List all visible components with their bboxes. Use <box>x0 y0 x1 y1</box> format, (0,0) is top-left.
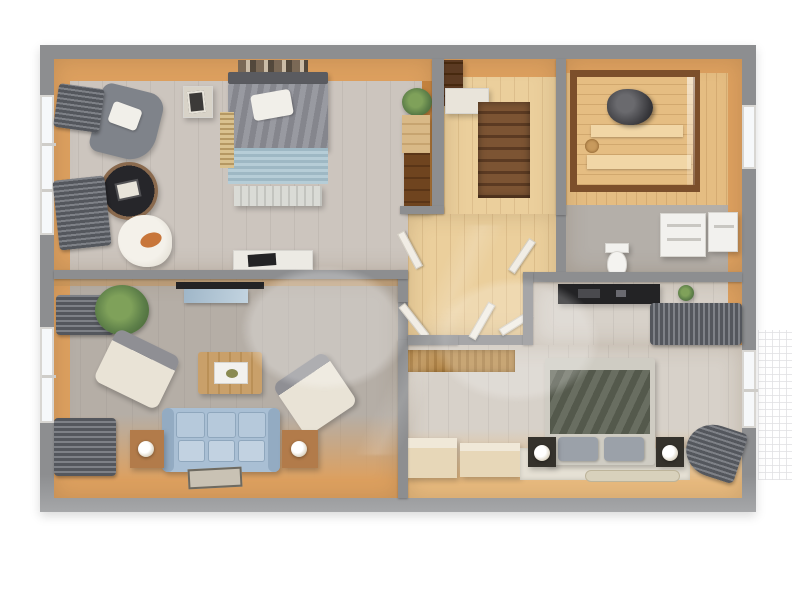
floor-plan <box>40 45 756 512</box>
page: { "scene": { "kind": "3d-rendered apartm… <box>0 0 800 590</box>
window-bedroom1 <box>40 95 54 235</box>
cabinet-light <box>402 115 430 153</box>
window-sauna <box>742 105 756 169</box>
laptop <box>248 253 277 267</box>
curtain-bedroom2-top <box>650 303 742 345</box>
tv-living-screen <box>184 289 248 303</box>
staircase <box>478 102 530 198</box>
plant-bedroom1 <box>402 88 432 116</box>
plant-living <box>95 285 149 335</box>
low-bench-2 <box>460 443 520 477</box>
sauna-bench-upper <box>591 125 683 137</box>
plant-bedroom2 <box>678 285 694 301</box>
bed2-pillow-left <box>558 437 598 461</box>
curtain-living-bottom <box>54 418 116 476</box>
outdoor-lattice <box>758 330 792 480</box>
rug-living <box>188 467 243 490</box>
bed1-headboard <box>228 72 328 84</box>
bed1-blanket <box>228 148 328 184</box>
bed2-pillow-right <box>604 437 644 461</box>
washer-cabinet-1 <box>660 213 706 257</box>
tv-living <box>176 282 264 289</box>
wall-hall-bottom <box>408 335 458 345</box>
wall-bedroom1-hall <box>432 59 444 213</box>
wall-stub-bedroom1 <box>400 206 444 214</box>
coffee-table-tray <box>214 362 248 384</box>
wall-bath-bedroom2 <box>523 272 742 282</box>
curtain-bedroom1-bottom <box>52 175 111 250</box>
wall-hall-bedroom2 <box>523 272 533 345</box>
wall-shelf-clutter <box>238 60 308 72</box>
lamp-right <box>291 441 307 457</box>
picture-frame <box>187 90 206 114</box>
lamp-bedroom2-right <box>662 445 678 461</box>
sauna-cabin <box>570 70 700 192</box>
washer-cabinet-2 <box>708 212 738 252</box>
woven-rug <box>405 350 515 372</box>
sofa <box>162 408 280 472</box>
lamp-left <box>138 441 154 457</box>
sauna-ladle <box>585 139 599 153</box>
runner-bedroom2 <box>585 470 680 482</box>
low-bench-1 <box>405 438 457 478</box>
window-living <box>40 327 54 423</box>
bed2-duvet <box>550 370 650 434</box>
slatted-runner <box>220 112 234 168</box>
lamp-bedroom2-left <box>534 445 550 461</box>
window-bedroom2 <box>742 350 756 428</box>
tv-console-bedroom2 <box>558 284 660 304</box>
wall-living-bedroom2 <box>398 340 408 498</box>
sauna-bench-lower <box>587 155 691 169</box>
sauna-glass <box>687 77 695 185</box>
sauna-heater <box>607 89 653 125</box>
cabinet-dark <box>404 153 430 213</box>
wall-hall-bath <box>556 59 566 215</box>
wall-bedroom1-living <box>54 270 408 279</box>
bed1-foot-bench <box>234 186 322 206</box>
curtain-bedroom1-top <box>53 83 105 133</box>
